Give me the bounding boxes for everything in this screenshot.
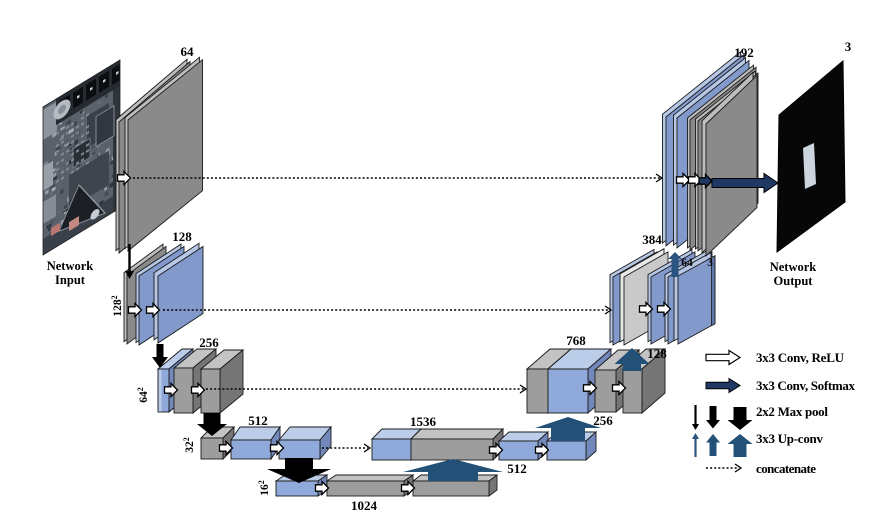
svg-text:2x2 Max pool: 2x2 Max pool	[756, 404, 828, 419]
svg-text:768: 768	[566, 333, 586, 348]
svg-text:Network: Network	[47, 259, 94, 273]
svg-text:3x3 Up-conv: 3x3 Up-conv	[756, 431, 824, 446]
svg-text:1536: 1536	[410, 414, 437, 429]
svg-text:Input: Input	[55, 273, 86, 287]
svg-text:64: 64	[181, 44, 195, 59]
svg-text:3x3 Conv, ReLU: 3x3 Conv, ReLU	[756, 350, 845, 365]
svg-text:1024: 1024	[351, 498, 378, 513]
svg-text:concatenate: concatenate	[756, 461, 816, 476]
svg-text:384: 384	[642, 232, 662, 247]
svg-text:3: 3	[845, 39, 852, 54]
svg-text:512: 512	[248, 413, 268, 428]
svg-text:3x3 Conv, Softmax: 3x3 Conv, Softmax	[756, 378, 856, 393]
svg-text:128: 128	[172, 229, 192, 244]
svg-text:256: 256	[593, 413, 613, 428]
svg-text:Network: Network	[770, 260, 817, 274]
svg-text:128: 128	[647, 346, 667, 361]
svg-text:256: 256	[199, 335, 219, 350]
svg-text:64: 64	[681, 257, 693, 269]
svg-text:192: 192	[734, 45, 754, 60]
svg-text:3: 3	[707, 257, 713, 269]
svg-text:Output: Output	[774, 274, 814, 288]
svg-text:512: 512	[507, 461, 527, 476]
